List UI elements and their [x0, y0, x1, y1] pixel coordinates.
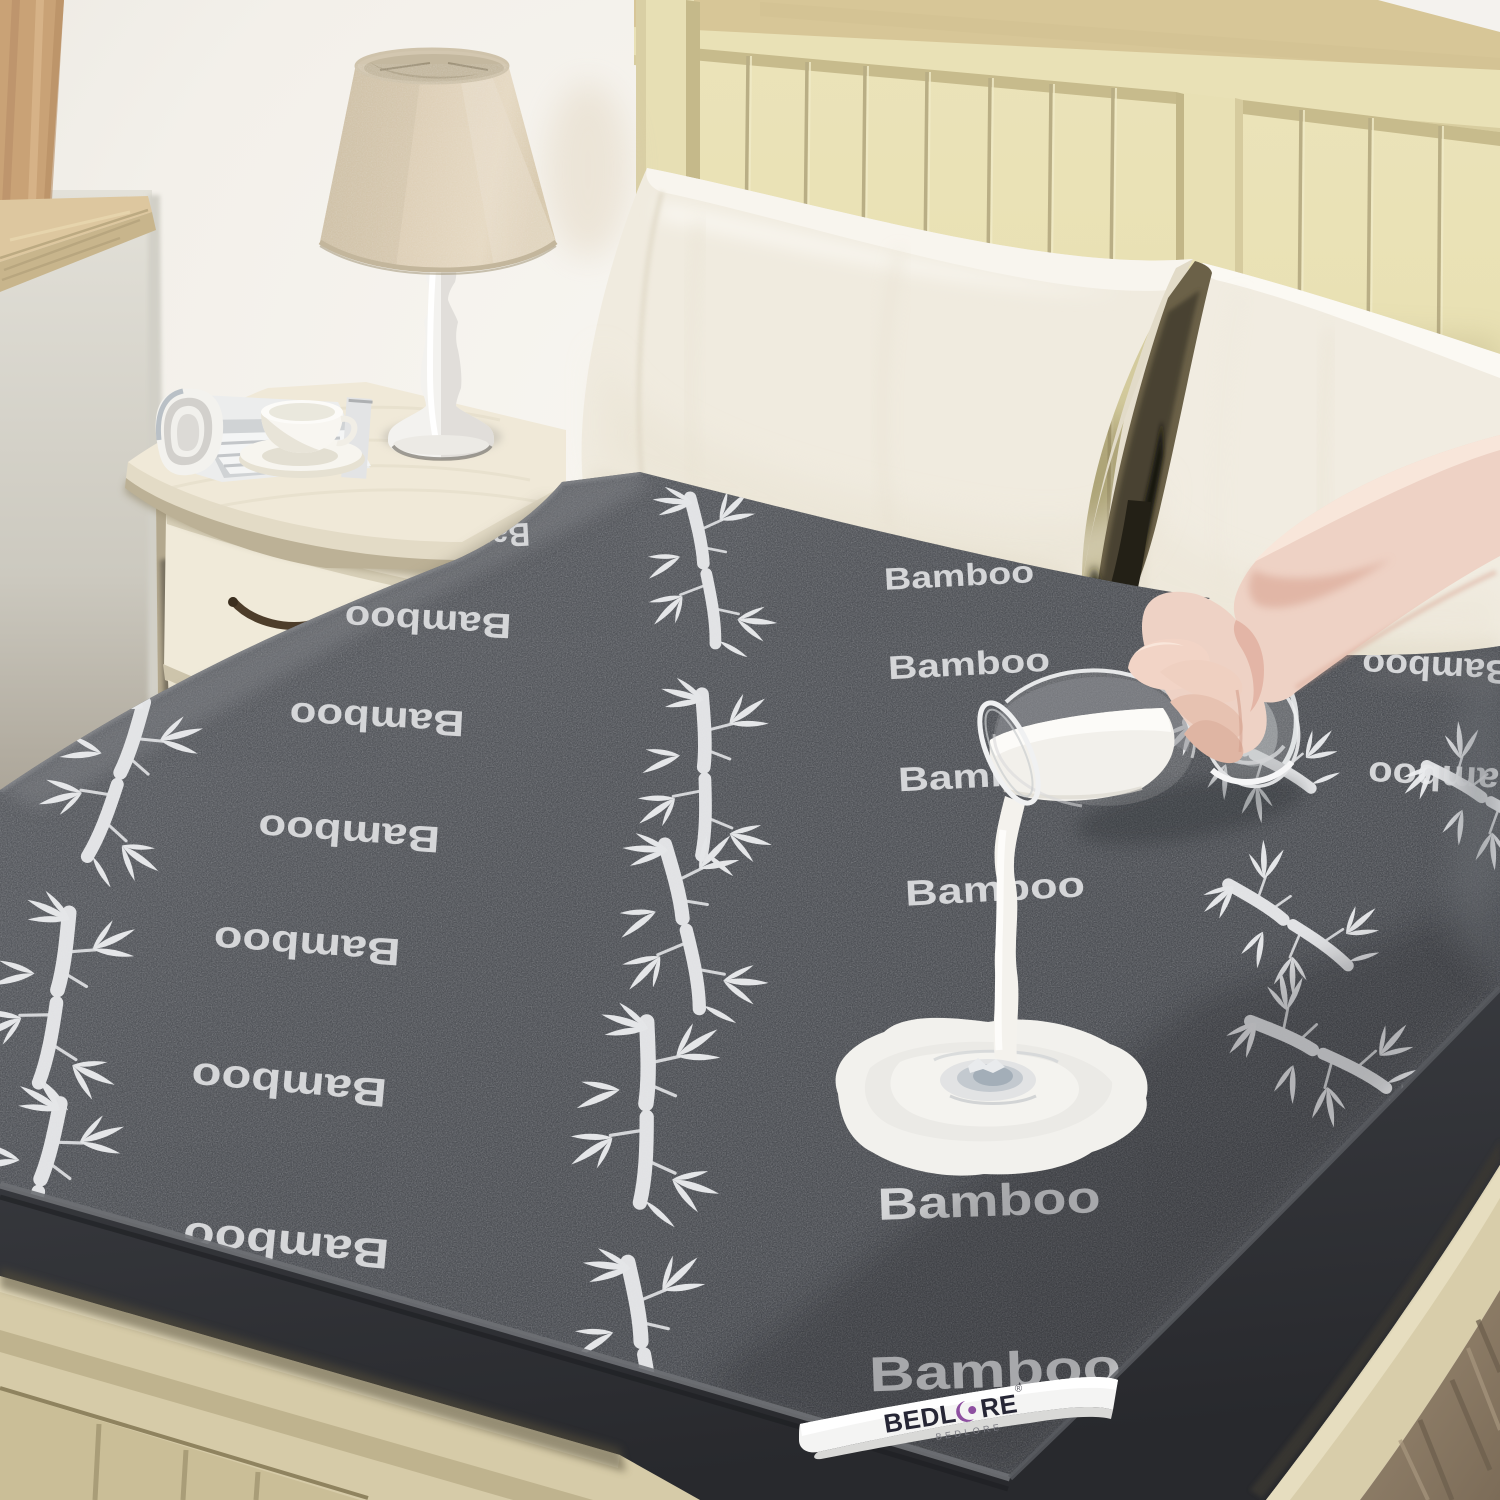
svg-text:RE: RE [978, 1388, 1019, 1423]
